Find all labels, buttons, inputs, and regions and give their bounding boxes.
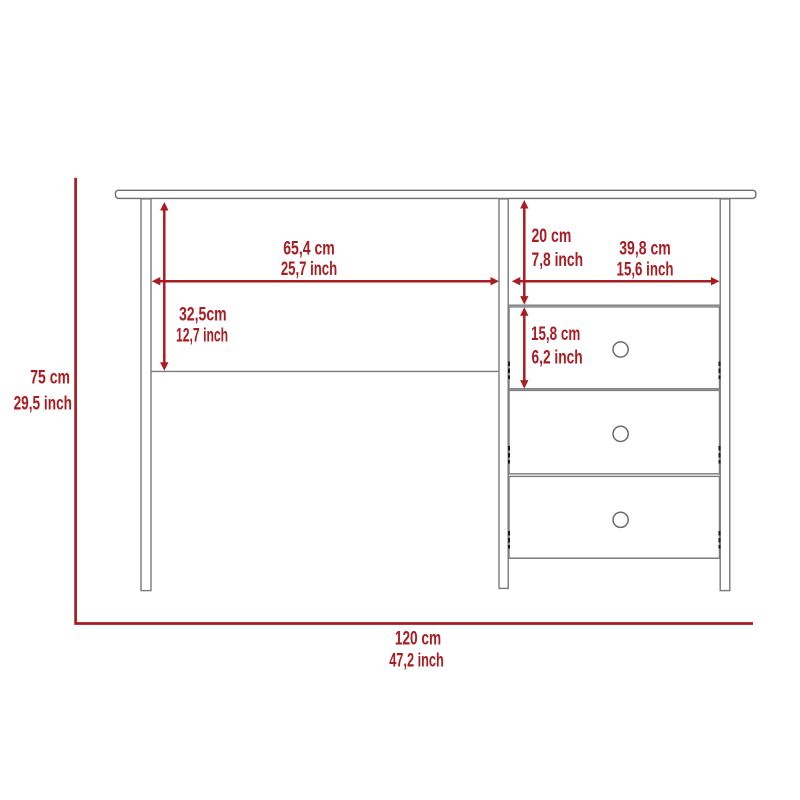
svg-text:39,8 cm: 39,8 cm <box>619 237 671 259</box>
svg-text:15,6 inch: 15,6 inch <box>617 258 674 280</box>
svg-text:25,7 inch: 25,7 inch <box>281 257 337 279</box>
svg-text:15,8 cm: 15,8 cm <box>531 323 580 345</box>
svg-text:120 cm: 120 cm <box>395 627 441 649</box>
svg-text:6,2 inch: 6,2 inch <box>532 346 583 368</box>
svg-text:32,5cm: 32,5cm <box>179 303 227 325</box>
svg-text:65,4 cm: 65,4 cm <box>283 237 335 259</box>
svg-text:7,8 inch: 7,8 inch <box>532 249 584 271</box>
svg-text:12,7 inch: 12,7 inch <box>176 325 228 347</box>
svg-text:29,5 inch: 29,5 inch <box>14 392 72 414</box>
svg-text:75 cm: 75 cm <box>30 366 70 388</box>
svg-text:20 cm: 20 cm <box>532 225 572 247</box>
svg-text:47,2 inch: 47,2 inch <box>389 650 444 671</box>
